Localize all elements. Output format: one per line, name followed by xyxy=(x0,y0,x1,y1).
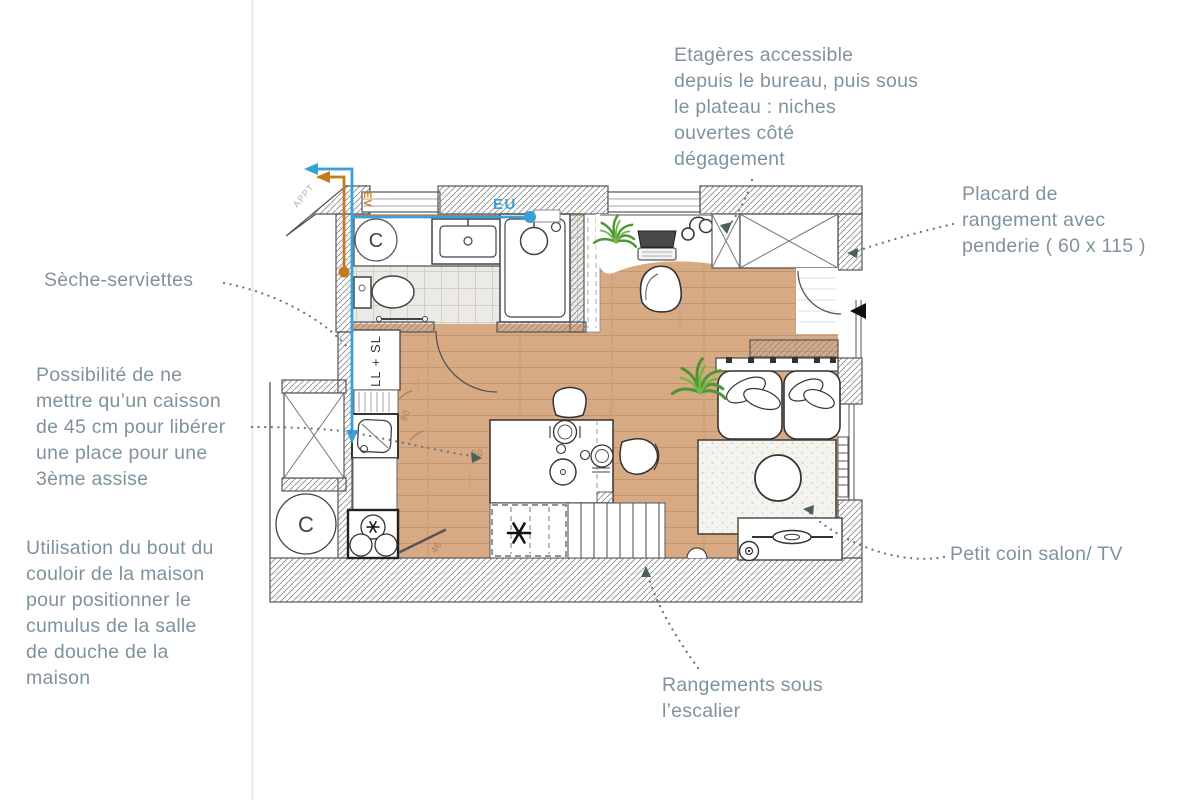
corridor-water-heater: C xyxy=(276,494,336,554)
open-niche xyxy=(712,214,740,268)
house-corridor: C xyxy=(270,382,344,558)
annotation-possibilite: Possibilité de ne mettre qu’un caisson d… xyxy=(36,362,271,492)
bathroom: C xyxy=(352,214,586,324)
corridor-shelf-top-bar xyxy=(282,380,346,393)
wall-top-bathroom xyxy=(438,186,608,214)
window-right-lower xyxy=(849,404,854,500)
entrance-marker-triangle xyxy=(850,303,866,319)
appt-scribble: APPT xyxy=(291,182,316,210)
wardrobe-placard xyxy=(740,214,838,268)
dining-chair-top xyxy=(553,388,586,418)
annotation-petit-coin: Petit coin salon/ TV xyxy=(950,541,1170,567)
annotation-rangements: Rangements sous l’escalier xyxy=(662,672,872,724)
kitchen-counter xyxy=(353,458,397,510)
pipe-eu-label: EU xyxy=(493,196,517,213)
corridor-shelf-bottom-bar xyxy=(282,478,346,491)
dish-rack xyxy=(354,390,398,414)
wall-bathroom-divider-right xyxy=(497,322,586,332)
wall-top-right xyxy=(700,186,862,214)
laptop-icon xyxy=(638,231,676,260)
wall-right-mid xyxy=(838,358,862,404)
washer-dryer-column: LL + SL xyxy=(352,330,400,390)
pipe-eu-arrow xyxy=(304,163,318,175)
wall-alcove-stub xyxy=(750,340,838,357)
coffee-table xyxy=(755,455,801,501)
wall-bottom xyxy=(270,558,862,602)
bathroom-water-heater: C xyxy=(355,219,397,261)
desk-chair xyxy=(641,266,682,312)
window-top-desk xyxy=(608,192,700,212)
stove xyxy=(348,510,398,558)
annotation-utilisation: Utilisation du bout du couloir de la mai… xyxy=(26,535,261,691)
sofa-bed xyxy=(716,358,840,439)
pipe-ev-arrow xyxy=(316,171,330,183)
annotation-placard: Placard de rangement avec penderie ( 60 … xyxy=(962,181,1192,259)
pipe-eu-node xyxy=(524,211,536,223)
washer-dryer-label: LL + SL xyxy=(368,335,383,387)
leader-placard xyxy=(854,224,953,252)
floor-plan-page: C xyxy=(0,0,1200,800)
shower xyxy=(500,214,570,322)
speaker-icon xyxy=(740,542,759,561)
toilet xyxy=(354,276,414,308)
pipe-ev-label: EV xyxy=(361,191,373,208)
understair-storage xyxy=(492,505,566,556)
wall-shower-side xyxy=(570,214,584,332)
wall-ladder xyxy=(838,437,848,497)
kitchen-sink xyxy=(352,414,398,458)
corridor-water-heater-label: C xyxy=(298,512,314,537)
water-heater-label: C xyxy=(369,230,383,252)
annotation-etageres: Etagères accessible depuis le bureau, pu… xyxy=(674,42,954,172)
washbasin xyxy=(432,219,504,264)
pipe-ev-node xyxy=(339,267,350,278)
wall-right-upper xyxy=(838,214,862,270)
serving-plate xyxy=(550,459,576,485)
staircase xyxy=(490,503,665,558)
annotation-seche-serviettes: Sèche-serviettes xyxy=(44,267,264,293)
